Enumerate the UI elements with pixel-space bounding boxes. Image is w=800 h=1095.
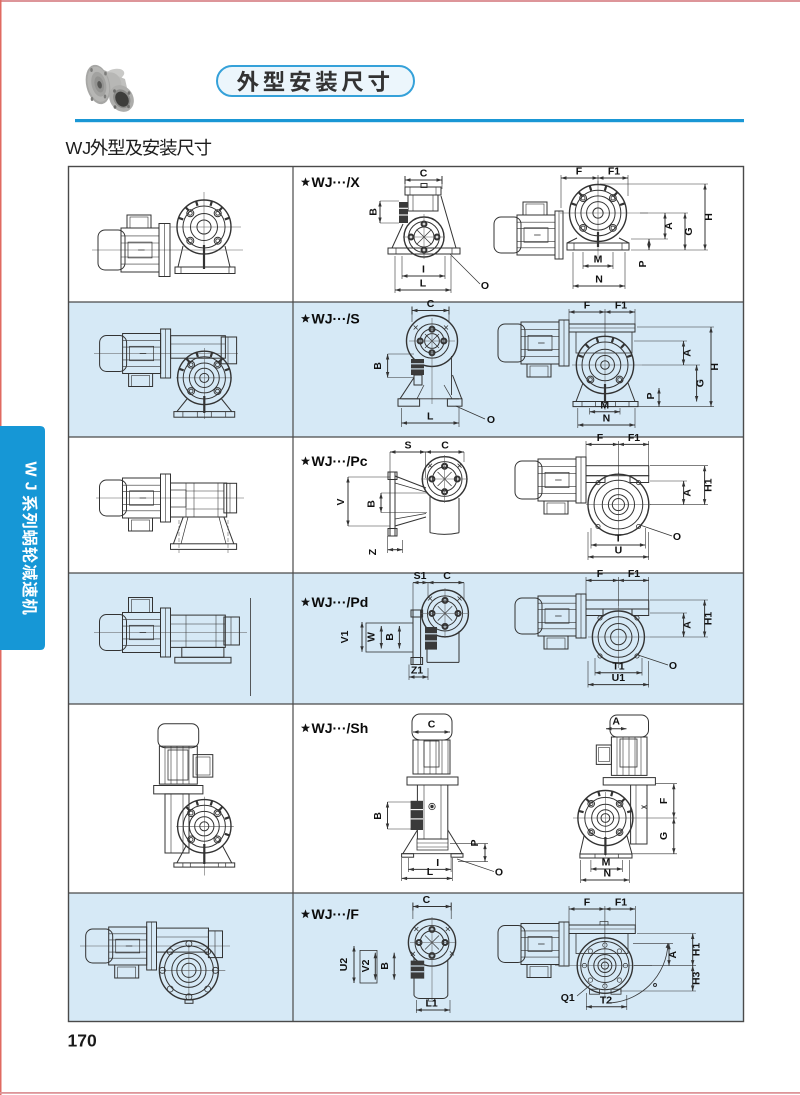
svg-text:F1: F1 <box>615 897 627 909</box>
svg-text:J: J <box>22 482 39 491</box>
svg-text:O: O <box>673 531 681 543</box>
svg-text:WJ···/X: WJ···/X <box>312 174 361 190</box>
svg-text:N: N <box>595 274 603 286</box>
svg-text:A: A <box>682 489 694 497</box>
svg-text:F1: F1 <box>608 166 620 178</box>
svg-text:W: W <box>366 632 378 642</box>
svg-text:C: C <box>428 719 436 731</box>
svg-text:WJ···/Sh: WJ···/Sh <box>312 720 369 736</box>
svg-text:B: B <box>372 812 384 820</box>
svg-text:Z1: Z1 <box>411 665 423 677</box>
svg-text:S: S <box>404 440 411 452</box>
svg-text:B: B <box>366 500 378 508</box>
svg-text:G: G <box>683 227 695 235</box>
svg-text:C: C <box>420 168 428 180</box>
svg-text:C: C <box>427 298 435 310</box>
svg-text:U: U <box>615 544 623 556</box>
svg-text:A: A <box>682 621 694 629</box>
svg-text:C: C <box>441 440 449 452</box>
svg-text:WJ: WJ <box>66 138 92 158</box>
svg-text:O: O <box>669 660 677 672</box>
svg-text:H: H <box>709 363 721 371</box>
svg-text:O: O <box>481 280 489 292</box>
svg-text:o: o <box>653 982 657 989</box>
svg-text:P: P <box>645 392 657 399</box>
svg-text:T2: T2 <box>600 994 612 1006</box>
svg-text:H1: H1 <box>691 943 703 957</box>
svg-text:T: T <box>615 533 622 545</box>
svg-text:WJ···/Pd: WJ···/Pd <box>312 594 369 610</box>
svg-text:O: O <box>495 867 503 879</box>
svg-text:A: A <box>667 950 679 958</box>
svg-text:U1: U1 <box>612 672 626 684</box>
svg-text:B: B <box>379 962 391 970</box>
svg-text:V2: V2 <box>360 959 372 972</box>
svg-text:WJ···/F: WJ···/F <box>312 906 360 922</box>
svg-text:G: G <box>695 379 707 387</box>
svg-text:L: L <box>427 866 434 878</box>
svg-text:P: P <box>469 839 481 846</box>
svg-text:M: M <box>594 254 603 266</box>
svg-text:I: I <box>422 264 425 276</box>
svg-text:F1: F1 <box>628 432 640 444</box>
svg-text:WJ···/S: WJ···/S <box>312 311 360 327</box>
svg-text:H3: H3 <box>691 971 703 985</box>
svg-text:W: W <box>22 461 39 477</box>
svg-text:L: L <box>420 278 427 290</box>
svg-text:A: A <box>663 222 675 230</box>
svg-text:F: F <box>597 432 604 444</box>
svg-text:U2: U2 <box>338 958 350 972</box>
svg-text:WJ···/Pc: WJ···/Pc <box>312 453 368 469</box>
svg-text:F: F <box>584 300 591 312</box>
svg-text:I: I <box>436 857 439 869</box>
svg-text:P: P <box>637 260 649 267</box>
svg-text:F: F <box>658 797 670 804</box>
svg-text:B: B <box>372 362 384 370</box>
svg-text:B: B <box>384 633 396 641</box>
svg-text:F1: F1 <box>628 568 640 580</box>
svg-text:V: V <box>335 498 347 505</box>
svg-text:C: C <box>443 570 451 582</box>
svg-text:C: C <box>423 894 431 906</box>
svg-text:A: A <box>612 716 620 728</box>
svg-text:F: F <box>584 897 591 909</box>
svg-text:M: M <box>600 399 609 411</box>
svg-text:G: G <box>658 832 670 840</box>
svg-text:L1: L1 <box>425 998 437 1010</box>
svg-text:N: N <box>603 413 611 425</box>
svg-text:O: O <box>487 414 495 426</box>
svg-text:B: B <box>368 208 380 216</box>
svg-text:V1: V1 <box>339 630 351 643</box>
svg-text:N: N <box>604 868 612 880</box>
svg-text:Q1: Q1 <box>561 992 575 1004</box>
svg-text:F1: F1 <box>615 300 627 312</box>
svg-text:170: 170 <box>68 1031 97 1051</box>
svg-text:T1: T1 <box>612 660 624 672</box>
svg-text:F: F <box>597 568 604 580</box>
svg-text:H: H <box>703 213 715 221</box>
svg-text:H1: H1 <box>703 612 715 626</box>
svg-text:F: F <box>576 166 583 178</box>
svg-text:Z: Z <box>367 548 379 555</box>
svg-text:H1: H1 <box>703 478 715 492</box>
svg-text:S1: S1 <box>414 570 427 582</box>
svg-text:L: L <box>427 411 434 423</box>
svg-text:A: A <box>682 349 694 357</box>
